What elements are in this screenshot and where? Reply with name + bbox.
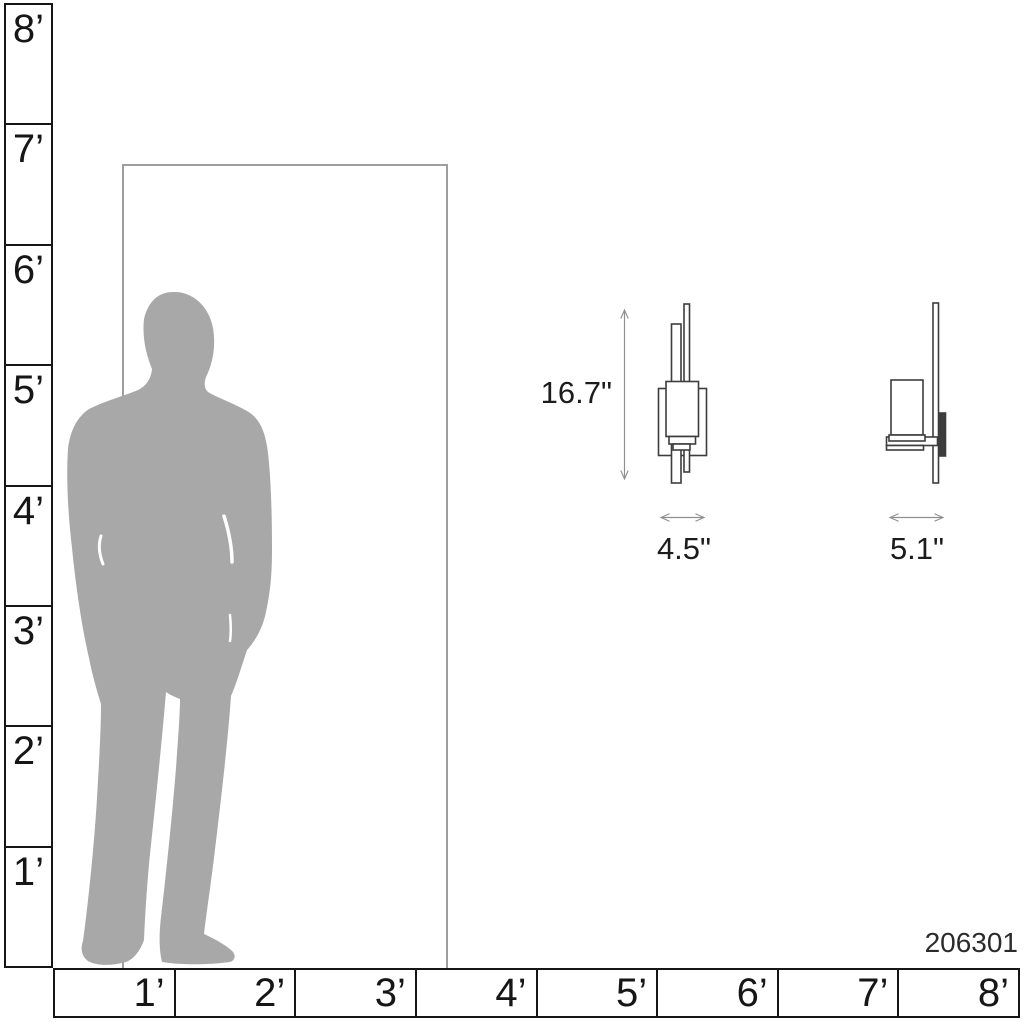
front-glass-shade bbox=[666, 382, 699, 437]
hruler-cell-2ft: 2’ bbox=[176, 970, 297, 1016]
hruler-cell-1ft: 1’ bbox=[55, 970, 176, 1016]
side-vertical-bar bbox=[933, 303, 939, 483]
hruler-cell-7ft: 7’ bbox=[779, 970, 900, 1016]
sconce-front-view bbox=[659, 304, 707, 483]
scale-diagram: 8’ 7’ 6’ 5’ 4’ 3’ 2’ 1’ bbox=[0, 0, 1024, 1024]
hruler-cell-3ft: 3’ bbox=[296, 970, 417, 1016]
front-shade-rim bbox=[669, 437, 696, 445]
hruler-cell-4ft: 4’ bbox=[417, 970, 538, 1016]
hruler-cell-6ft: 6’ bbox=[658, 970, 779, 1016]
depth-dimension-label: 5.1" bbox=[857, 533, 977, 564]
side-shade-rim bbox=[889, 435, 925, 441]
side-glass-shade bbox=[891, 380, 923, 435]
side-wall-plate bbox=[940, 413, 946, 456]
sconce-side-view bbox=[887, 303, 946, 483]
hruler-cell-8ft: 8’ bbox=[899, 970, 1018, 1016]
side-arm-lip bbox=[887, 446, 924, 451]
hruler-cell-5ft: 5’ bbox=[538, 970, 659, 1016]
width-dimension-label: 4.5" bbox=[624, 533, 744, 564]
scale-figure-silhouette bbox=[67, 292, 272, 965]
product-number: 206301 bbox=[890, 929, 1018, 957]
height-dimension-label: 16.7" bbox=[492, 377, 612, 408]
person-silhouette bbox=[67, 292, 272, 965]
scene-drawing bbox=[0, 0, 1024, 1024]
front-bracket bbox=[673, 444, 690, 450]
horizontal-foot-ruler: 1’ 2’ 3’ 4’ 5’ 6’ 7’ 8’ bbox=[53, 968, 1020, 1018]
right-jacket-slit bbox=[230, 615, 231, 641]
